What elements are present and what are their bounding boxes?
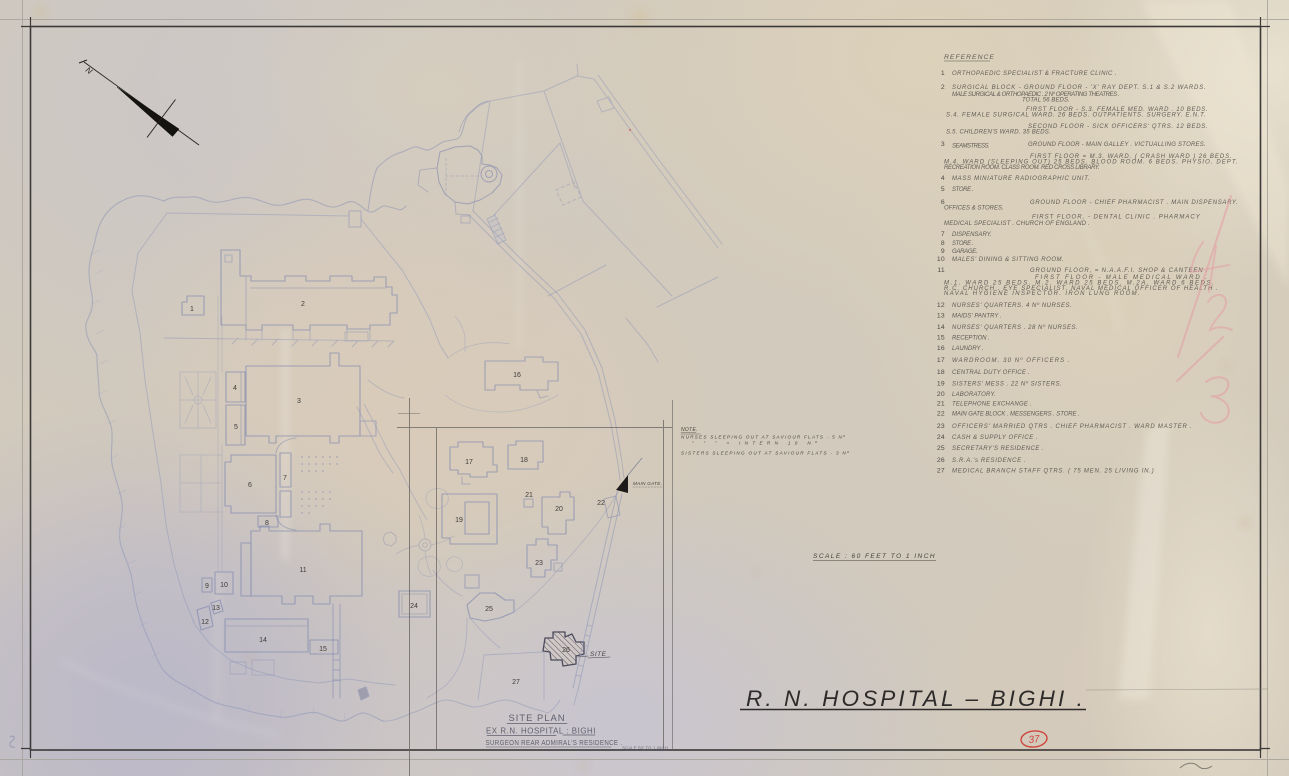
- svg-text:DISPENSARY.: DISPENSARY.: [952, 232, 992, 238]
- svg-text:6: 6: [248, 482, 252, 489]
- svg-text:SURGICAL BLOCK - GROUND F: SURGICAL BLOCK - GROUND FLOOR - 'X' RAY …: [952, 85, 1206, 91]
- svg-text:15: 15: [319, 646, 327, 653]
- svg-text:1: 1: [190, 306, 194, 313]
- svg-text:24: 24: [410, 603, 418, 610]
- svg-text:13: 13: [212, 605, 220, 612]
- svg-text:GROUND FLOOR - MAIN GALLE: GROUND FLOOR - MAIN GALLEY . VICTUALLING…: [1028, 142, 1206, 148]
- svg-text:MASS MINIATURE RADIOGRAPHIC: MASS MINIATURE RADIOGRAPHIC UNIT.: [952, 176, 1090, 182]
- svg-text:12: 12: [937, 302, 945, 309]
- svg-text:9: 9: [941, 248, 945, 255]
- svg-text:10: 10: [220, 582, 228, 589]
- svg-text:RECEPTION .: RECEPTION .: [952, 336, 990, 342]
- svg-text:MALES' DINING & SITTING RO: MALES' DINING & SITTING ROOM.: [952, 257, 1064, 263]
- svg-text:2: 2: [941, 84, 945, 91]
- svg-text:20: 20: [555, 506, 563, 513]
- svg-text:18: 18: [937, 369, 945, 376]
- svg-text:SCALE : 60 FEET TO 1 INC: SCALE : 60 FEET TO 1 INCH: [813, 553, 935, 560]
- svg-text:S.R.A.'s RESIDENCE .: S.R.A.'s RESIDENCE .: [952, 458, 1026, 464]
- svg-text:STORE .: STORE .: [952, 187, 974, 193]
- svg-text:SECRETARY'S RESIDENCE .: SECRETARY'S RESIDENCE .: [952, 446, 1044, 452]
- svg-text:REFERENCE: REFERENCE: [944, 54, 995, 61]
- svg-text:CASH & SUPPLY OFFICE .: CASH & SUPPLY OFFICE .: [952, 435, 1038, 441]
- svg-text:27: 27: [512, 679, 520, 686]
- svg-text:SITE: SITE: [590, 651, 607, 658]
- svg-text:MAIDS' PANTRY .: MAIDS' PANTRY .: [952, 314, 1002, 320]
- svg-text:OFFICERS' MARRIED QTRS .: OFFICERS' MARRIED QTRS . CHIEF PHARMACIS…: [952, 424, 1192, 430]
- svg-text:TOTAL 56 BEDS.: TOTAL 56 BEDS.: [1022, 98, 1070, 104]
- svg-text:26: 26: [937, 457, 945, 464]
- svg-text:NURSES' QUARTERS. 4 Nº N: NURSES' QUARTERS. 4 Nº NURSES.: [952, 302, 1072, 309]
- svg-text:13: 13: [937, 313, 945, 320]
- svg-text:4: 4: [233, 385, 237, 392]
- svg-text:18: 18: [520, 457, 528, 464]
- svg-text:SISTERS' MESS . 22 Nº SIST: SISTERS' MESS . 22 Nº SISTERS.: [952, 381, 1062, 388]
- svg-text:5: 5: [941, 186, 945, 193]
- svg-text:NOTE.: NOTE.: [681, 427, 698, 433]
- svg-text:26: 26: [562, 647, 570, 654]
- svg-text:24: 24: [937, 434, 945, 441]
- svg-text:S.5. CHILDREN'S WARD. 35: S.5. CHILDREN'S WARD. 35 BEDS.: [946, 130, 1051, 136]
- svg-text:17: 17: [937, 357, 945, 364]
- svg-text:22: 22: [597, 500, 605, 507]
- svg-text:GARAGE.: GARAGE.: [952, 249, 978, 255]
- svg-text:GROUND FLOOR - CHIEF PHA: GROUND FLOOR - CHIEF PHARMACIST . MAIN D…: [1030, 200, 1238, 206]
- svg-text:10: 10: [937, 256, 945, 263]
- svg-text:17: 17: [465, 459, 473, 466]
- svg-text:SITE PLAN: SITE PLAN: [509, 713, 566, 724]
- svg-text:37: 37: [1028, 734, 1041, 746]
- svg-text:SEAMSTRESS.: SEAMSTRESS.: [952, 144, 990, 150]
- svg-text:MAIN GATE.: MAIN GATE.: [633, 481, 662, 486]
- svg-text:LABORATORY.: LABORATORY.: [952, 392, 996, 398]
- svg-text:21: 21: [525, 492, 533, 499]
- svg-text:R. N. HOSPITAL – BIGHI .: R. N. HOSPITAL – BIGHI .: [746, 686, 1086, 711]
- svg-text:11: 11: [299, 567, 306, 574]
- svg-text:SISTERS SLEEPING OUT AT SA: SISTERS SLEEPING OUT AT SAVIOUR FLATS - …: [681, 451, 849, 456]
- svg-text:7: 7: [283, 475, 287, 482]
- svg-text:LAUNDRY .: LAUNDRY .: [952, 346, 984, 352]
- svg-text:3: 3: [297, 398, 301, 405]
- svg-text:GROUND FLOOR, = N.A.A.F.I: GROUND FLOOR, = N.A.A.F.I. SHOP & CANTEE…: [1030, 268, 1208, 274]
- svg-text:25: 25: [937, 445, 945, 452]
- svg-text:NURSES' QUARTERS . 28 Nº N: NURSES' QUARTERS . 28 Nº NURSES.: [952, 324, 1078, 331]
- svg-text:FIRST FLOOR, - DENTAL C: FIRST FLOOR, - DENTAL CLINIC . PHARMACY: [1032, 215, 1201, 221]
- svg-text:22: 22: [937, 411, 945, 418]
- svg-text:ORTHOPAEDIC SPECIALIST & FR: ORTHOPAEDIC SPECIALIST & FRACTURE CLINIC…: [952, 71, 1117, 77]
- svg-text:3: 3: [941, 141, 945, 148]
- svg-text:9: 9: [205, 583, 209, 590]
- svg-text:MEDICAL SPECIALIST . CHURCH: MEDICAL SPECIALIST . CHURCH OF ENGLAND .: [944, 221, 1090, 227]
- svg-text:OFFICES & STORES.: OFFICES & STORES.: [944, 206, 1004, 212]
- svg-text:SCALE 50' TO 1 INCH: SCALE 50' TO 1 INCH: [622, 746, 668, 751]
- svg-text:27: 27: [937, 468, 945, 475]
- svg-text:16: 16: [513, 372, 521, 379]
- svg-text:7: 7: [941, 231, 945, 238]
- svg-text:15: 15: [937, 335, 945, 342]
- svg-text:11: 11: [937, 267, 945, 274]
- svg-text:MAIN GATE BLOCK . MESSENGE: MAIN GATE BLOCK . MESSENGERS . STORE .: [952, 412, 1080, 418]
- svg-text:23: 23: [535, 560, 543, 567]
- svg-text:NAVAL HYGIENE INSPECTOR.: NAVAL HYGIENE INSPECTOR. IRON LUNG ROOM.: [944, 291, 1140, 297]
- svg-text:23: 23: [937, 423, 945, 430]
- svg-text:MEDICAL BRANCH STAFF QTRS.: MEDICAL BRANCH STAFF QTRS. ( 75 MEN. 25 …: [952, 469, 1154, 475]
- svg-text:RECREATION ROOM. CLASS ROO: RECREATION ROOM. CLASS ROOM. RED CROSS L…: [944, 165, 1100, 171]
- svg-text:2: 2: [301, 301, 305, 308]
- svg-text:16: 16: [937, 345, 945, 352]
- svg-text:14: 14: [937, 324, 945, 331]
- svg-text:1: 1: [941, 70, 945, 77]
- svg-text:21: 21: [937, 401, 945, 408]
- svg-text:STORE .: STORE .: [952, 241, 974, 247]
- svg-text:19: 19: [937, 381, 945, 388]
- svg-text:25: 25: [485, 606, 493, 613]
- svg-text:TELEPHONE EXCHANGE .: TELEPHONE EXCHANGE .: [952, 402, 1032, 408]
- svg-text:14: 14: [259, 637, 267, 644]
- svg-text:12: 12: [201, 619, 209, 626]
- svg-text:8: 8: [265, 520, 269, 527]
- svg-text:CENTRAL DUTY OFFICE .: CENTRAL DUTY OFFICE .: [952, 370, 1030, 376]
- svg-text:4: 4: [941, 175, 945, 182]
- svg-text:EX R.N. HOSPITAL : BIGHI: EX R.N. HOSPITAL : BIGHI: [486, 726, 596, 736]
- svg-text:20: 20: [937, 391, 945, 398]
- svg-text:S.4. FEMALE SURGICAL WARD.: S.4. FEMALE SURGICAL WARD. 26 BEDS. OUTP…: [946, 113, 1206, 119]
- svg-text:5: 5: [234, 424, 238, 431]
- svg-text:19: 19: [455, 517, 463, 524]
- svg-text:SECOND FLOOR - SICK OFFICE: SECOND FLOOR - SICK OFFICERS' QTRS. 12 B…: [1028, 124, 1208, 130]
- svg-text:8: 8: [941, 240, 945, 247]
- svg-text:SURGEON REAR ADMIRAL'S RESIDEN: SURGEON REAR ADMIRAL'S RESIDENCE .: [486, 738, 623, 747]
- svg-text:WARDROOM. 30 Nº OFFICERS: WARDROOM. 30 Nº OFFICERS .: [952, 357, 1070, 364]
- svg-text:NURSES SLEEPING OUT AT SAV: NURSES SLEEPING OUT AT SAVIOUR FLATS - 5…: [681, 435, 845, 440]
